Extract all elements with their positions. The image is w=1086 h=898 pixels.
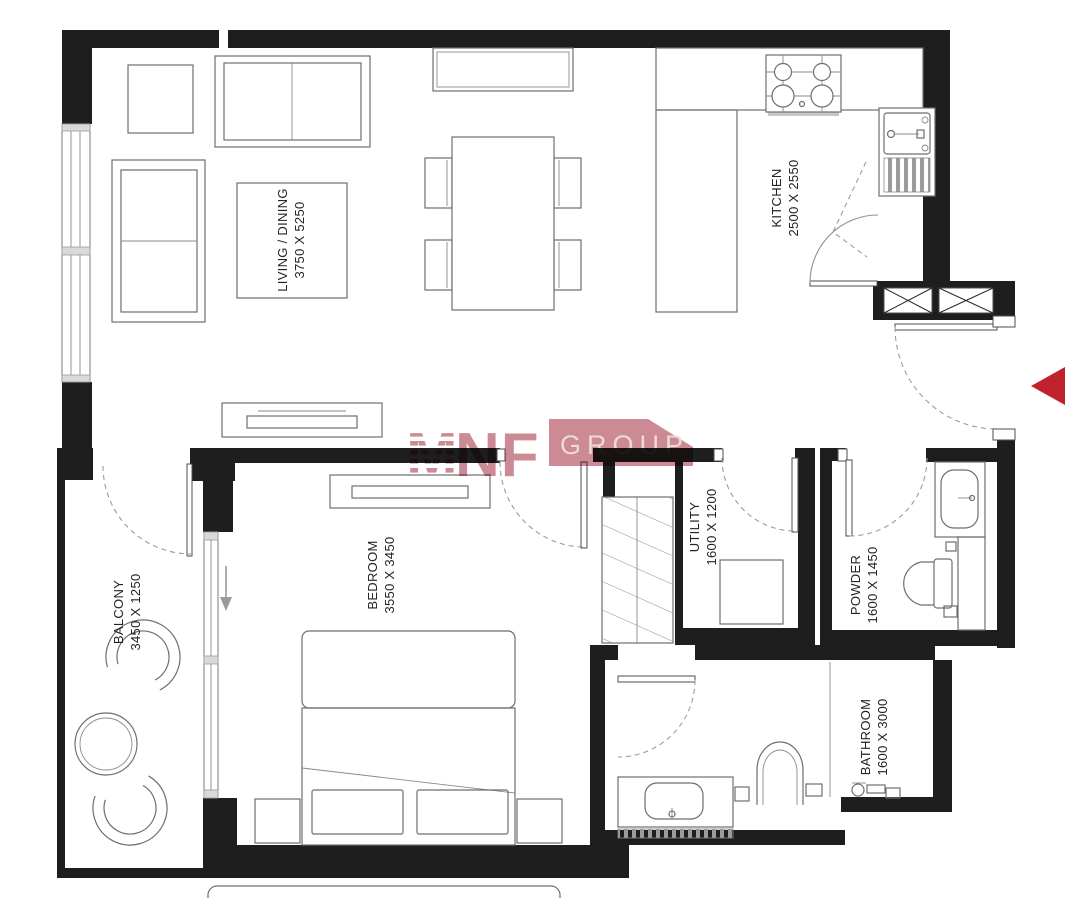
bathroom-toilet-icon <box>735 742 822 805</box>
bathroom-door <box>618 676 695 757</box>
svg-text:1600 X 3000: 1600 X 3000 <box>875 698 890 775</box>
svg-text:BALCONY: BALCONY <box>111 580 126 644</box>
watermark-group-text: GROUP <box>560 430 689 460</box>
balcony-door <box>103 464 192 556</box>
wardrobe <box>602 497 673 643</box>
lower-balcony-edge <box>208 886 560 898</box>
living-window <box>62 124 90 382</box>
sofa <box>215 56 370 147</box>
sideboard <box>433 48 573 91</box>
tv-console <box>222 403 382 437</box>
label-kitchen: KITCHEN 2500 X 2550 <box>769 159 801 236</box>
balcony-sliding-door <box>204 532 232 798</box>
washing-machine <box>720 560 783 624</box>
shower-set-icon <box>852 783 900 798</box>
label-balcony: BALCONY 3450 X 1250 <box>111 573 143 650</box>
label-living-dining: LIVING / DINING 3750 X 5250 <box>237 183 347 298</box>
svg-text:3550 X 3450: 3550 X 3450 <box>382 536 397 613</box>
label-bedroom: BEDROOM 3550 X 3450 <box>365 536 397 613</box>
utility-door <box>714 449 798 532</box>
kitchen-sink-icon <box>879 108 935 196</box>
svg-text:LIVING / DINING: LIVING / DINING <box>275 188 290 291</box>
svg-text:UTILITY: UTILITY <box>687 502 702 553</box>
powder-door <box>838 449 927 536</box>
watermark-letters-nf: NF <box>455 421 540 490</box>
nightstand-left <box>255 799 300 843</box>
round-table <box>75 713 137 775</box>
loveseat <box>112 160 205 322</box>
svg-text:POWDER: POWDER <box>848 555 863 615</box>
brand-watermark: M NF GROUP <box>406 419 693 490</box>
svg-text:2500 X 2550: 2500 X 2550 <box>786 159 801 236</box>
label-bathroom: BATHROOM 1600 X 3000 <box>858 698 890 775</box>
svg-text:3750 X 5250: 3750 X 5250 <box>292 201 307 278</box>
svg-text:1600 X 1450: 1600 X 1450 <box>865 546 880 623</box>
svg-text:3450 X 1250: 3450 X 1250 <box>128 573 143 650</box>
side-table <box>128 65 193 133</box>
bed <box>302 631 515 845</box>
nightstand-right <box>517 799 562 843</box>
stove-icon <box>766 55 841 116</box>
service-shafts <box>884 288 993 313</box>
powder-toilet-icon <box>904 542 957 617</box>
slide-direction-arrow-icon <box>220 597 232 611</box>
kitchen-door <box>810 162 878 286</box>
entry-direction-marker-icon <box>1031 367 1065 405</box>
dining-table-set <box>425 137 581 310</box>
svg-text:BATHROOM: BATHROOM <box>858 699 873 776</box>
floor-plan: LIVING / DINING 3750 X 5250 KITCHEN 2500… <box>0 0 1086 898</box>
bathroom-vanity-icon <box>618 777 733 838</box>
floor-plan-page: LIVING / DINING 3750 X 5250 KITCHEN 2500… <box>0 0 1086 898</box>
entry-door <box>895 316 1015 440</box>
svg-text:BEDROOM: BEDROOM <box>365 540 380 609</box>
svg-text:1600 X 1200: 1600 X 1200 <box>704 488 719 565</box>
label-utility: UTILITY 1600 X 1200 <box>687 488 719 565</box>
svg-text:KITCHEN: KITCHEN <box>769 168 784 227</box>
label-powder: POWDER 1600 X 1450 <box>848 546 880 623</box>
watermark-letter-m: M <box>406 421 459 490</box>
